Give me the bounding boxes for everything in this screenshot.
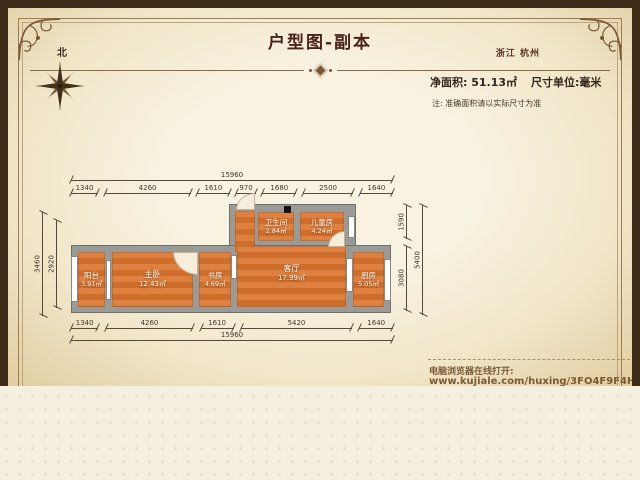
page-background: 户型图-副本 浙江 杭州 净面积: 51.13㎡ 尺寸单位:毫米 注: 准确面积… (0, 0, 640, 480)
location-label: 浙江 杭州 (438, 46, 598, 59)
dim-right-total: 5400 (422, 205, 432, 315)
entry-door-arc (236, 193, 255, 210)
footer-divider (428, 359, 630, 360)
room-kids: 儿童房 4.24㎡ (300, 212, 344, 241)
room-bathroom: 卫生间 2.84㎡ (258, 212, 294, 241)
kitchen-door-gap (346, 258, 353, 292)
dim-bottom-segments: 13404260161054201640 (71, 319, 393, 329)
room-study: 书房 4.69㎡ (199, 252, 231, 307)
room-master-bedroom: 主卧 12.43㎡ (112, 252, 193, 307)
balcony-door-window (106, 260, 111, 300)
share-url: www.kujiale.com/huxing/3FO4F9F4HNCN (429, 376, 640, 386)
north-label: 北 (52, 44, 72, 59)
room-balcony: 阳台 3.91㎡ (78, 252, 105, 307)
dim-left-inner: 2920 (56, 220, 66, 308)
diamond-ornament-icon (315, 65, 325, 75)
compass-icon (36, 62, 84, 110)
dim-top-segments: 134042601610970168025001640 (71, 184, 393, 194)
net-area-value: 净面积: 51.13㎡ (430, 74, 517, 90)
unit-label: 尺寸单位:毫米 (531, 74, 601, 90)
kitchen-window (384, 259, 391, 301)
kids-room-window (348, 216, 355, 238)
room-living: 客厅 17.99㎡ (237, 246, 346, 301)
floorplan-picture: 户型图-副本 浙江 杭州 净面积: 51.13㎡ 尺寸单位:毫米 注: 准确面积… (0, 0, 640, 386)
room-kitchen: 厨房 5.05㎡ (353, 252, 384, 307)
area-summary: 净面积: 51.13㎡ 尺寸单位:毫米 (430, 74, 601, 90)
balcony-window (71, 256, 78, 302)
disclaimer-note: 注: 准确面积请以实际尺寸为准 (432, 98, 541, 109)
dim-top-total: 15960 (71, 171, 393, 181)
dim-bottom-total: 15960 (71, 331, 393, 341)
